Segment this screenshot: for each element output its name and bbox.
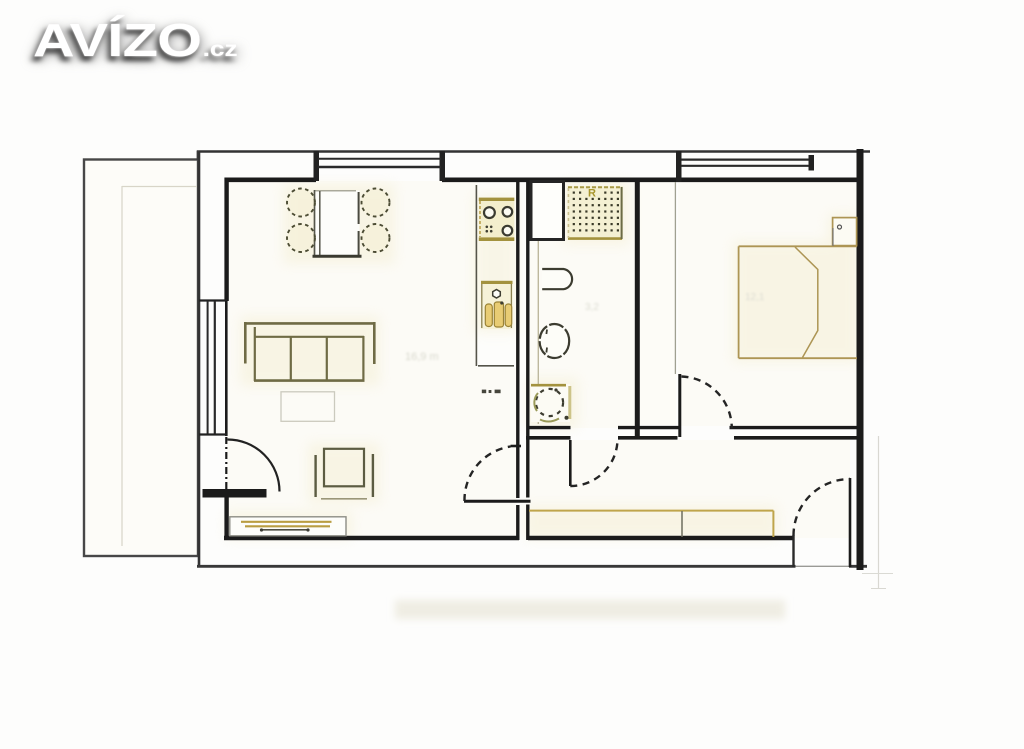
svg-text:12,1: 12,1 [745,292,765,303]
svg-text:16,9 m: 16,9 m [405,351,439,363]
svg-text:R: R [588,188,596,200]
svg-text:3,2: 3,2 [585,302,599,313]
